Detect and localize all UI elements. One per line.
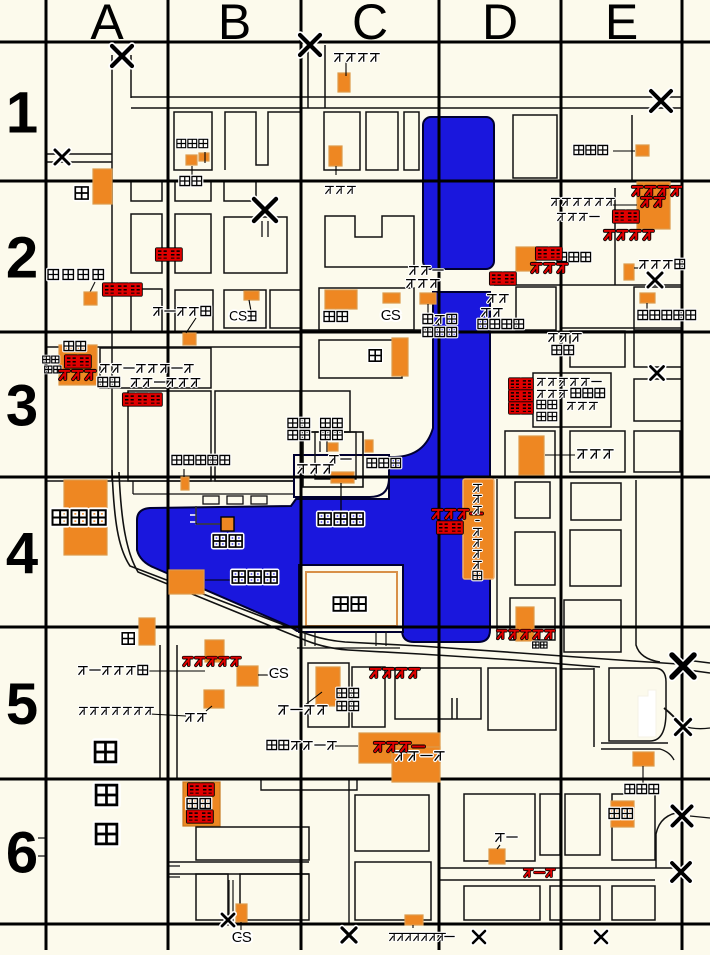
svg-text:S: S — [242, 930, 252, 946]
svg-text:E: E — [605, 0, 638, 50]
svg-text:2: 2 — [6, 226, 38, 291]
svg-text:B: B — [218, 0, 251, 50]
svg-text:4: 4 — [6, 521, 38, 586]
svg-text:S: S — [391, 308, 401, 324]
svg-text:1: 1 — [6, 81, 38, 146]
svg-text:S: S — [279, 666, 289, 682]
svg-text:S: S — [238, 308, 247, 323]
svg-text:C: C — [352, 0, 388, 50]
svg-text:A: A — [90, 0, 124, 50]
svg-text:D: D — [482, 0, 518, 50]
svg-text:6: 6 — [6, 821, 38, 886]
svg-text:5: 5 — [6, 672, 38, 737]
svg-text:3: 3 — [6, 374, 38, 439]
